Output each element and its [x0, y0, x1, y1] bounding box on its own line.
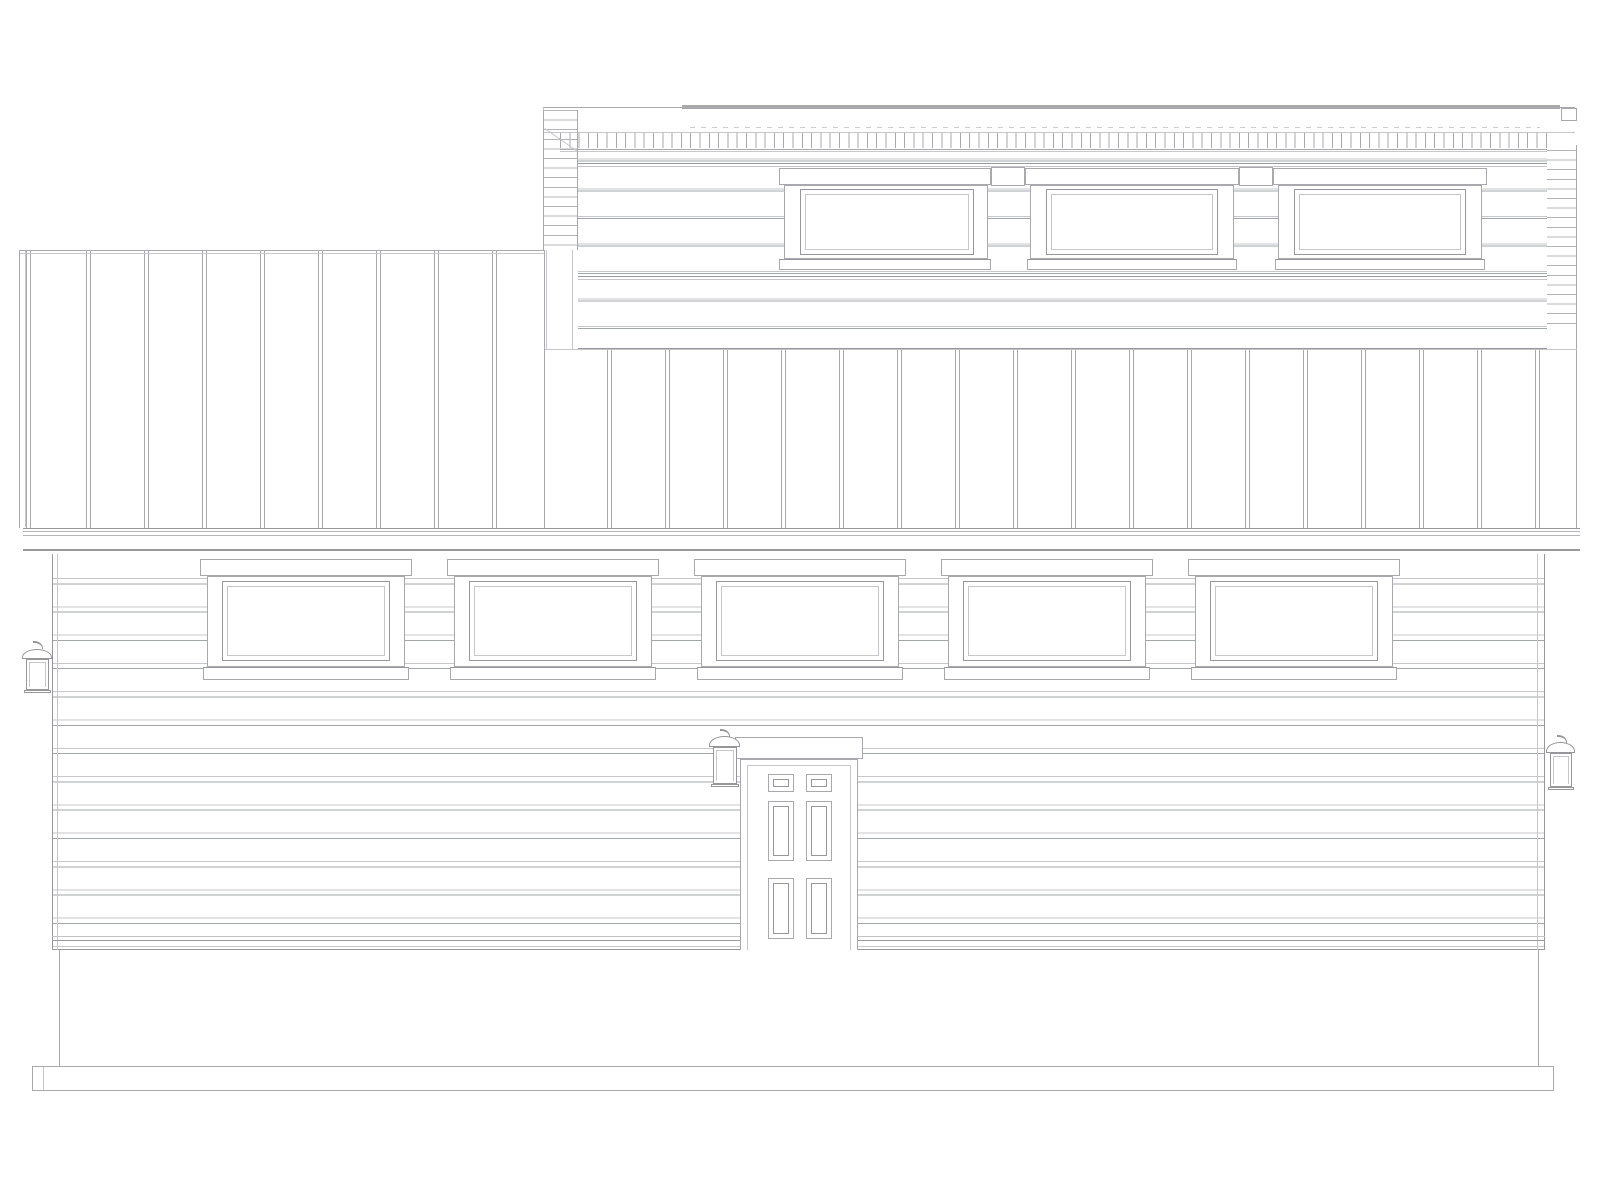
elevation-sheet: [0, 0, 1600, 1200]
main-window-5: [1195, 576, 1393, 667]
entry-door: [740, 759, 858, 958]
sconce-door: [713, 747, 737, 784]
hidden-roof-dashed-line: [690, 127, 1540, 128]
main-window-2-glass: [474, 586, 632, 656]
main-window-4: [948, 576, 1146, 667]
main-window-4-sill: [944, 667, 1150, 680]
upper-window-1-sash: [800, 189, 974, 255]
main-window-4-glass: [968, 586, 1126, 656]
main-window-5-glass: [1215, 586, 1373, 656]
upper-window-3-sill: [1275, 259, 1485, 270]
upper-head-band: [578, 163, 1547, 167]
upper-window-3-head: [1273, 168, 1487, 185]
sconce-left-hook: [33, 641, 43, 649]
upper-window-1-head: [779, 168, 991, 185]
upper-sill-band: [578, 276, 1547, 280]
upper-window-3-glass: [1299, 194, 1461, 250]
door-head-trim: [735, 737, 863, 759]
sconce-left-cap: [22, 649, 52, 659]
door-panel-bottom-left: [768, 878, 794, 939]
upper-window-2-sash: [1046, 189, 1218, 255]
main-window-2-head: [447, 559, 659, 576]
main-window-1-sash: [222, 581, 390, 661]
upper-window-2-glass: [1051, 194, 1213, 250]
main-window-3-sill: [697, 667, 903, 680]
eave-band: [23, 528, 1580, 554]
door-slab: [747, 765, 851, 952]
main-window-3: [701, 576, 899, 667]
upper-window-2-head: [1025, 168, 1239, 185]
upper-window-1: [784, 185, 988, 259]
upper-window-3-sash: [1294, 189, 1466, 255]
main-window-2-sill: [450, 667, 656, 680]
roof-left-panel-inner-left-line: [25, 251, 26, 527]
upper-window-2: [1030, 185, 1234, 259]
upper-window-3: [1278, 185, 1482, 259]
frieze-band: [560, 149, 1547, 152]
foundation-wall: [59, 950, 1539, 1066]
sconce-right-plate: [1548, 787, 1574, 790]
main-window-5-sill: [1191, 667, 1397, 680]
roof-left-panel-block: [19, 250, 545, 528]
main-window-1-head: [200, 559, 412, 576]
rafter-tick-band: [560, 133, 1547, 148]
roof-left-panel-inner-top-line: [20, 253, 544, 254]
upper-head-connector-1: [991, 167, 1025, 186]
door-panel-top-right: [806, 774, 832, 792]
main-window-3-sash: [716, 581, 884, 661]
roof-batten-band: [545, 349, 1577, 528]
main-window-2-sash: [469, 581, 637, 661]
sconce-door-plate: [711, 784, 739, 787]
main-window-1-glass: [227, 586, 385, 656]
main-window-3-head: [694, 559, 906, 576]
main-window-5-head: [1188, 559, 1400, 576]
main-window-2: [454, 576, 652, 667]
footing-strip: [32, 1066, 1554, 1091]
main-wall-left-corner-line: [57, 554, 58, 950]
door-panel-middle-left: [768, 801, 794, 861]
upper-window-1-sill: [779, 259, 991, 270]
sconce-left: [26, 659, 49, 690]
footing-left-joint-line: [43, 1067, 44, 1090]
main-window-5-sash: [1210, 581, 1378, 661]
upper-window-1-glass: [805, 194, 969, 250]
upper-roof-edge-line: [682, 105, 1560, 109]
main-wall-right-corner-line: [1537, 554, 1538, 950]
upper-head-connector-2: [1239, 167, 1273, 186]
main-window-4-head: [941, 559, 1153, 576]
door-panel-bottom-right: [806, 878, 832, 939]
right-return-siding-lines: [1547, 150, 1576, 332]
main-window-3-glass: [721, 586, 879, 656]
sconce-right-cap: [1546, 742, 1575, 753]
sconce-right: [1550, 753, 1572, 787]
sconce-door-cap: [709, 736, 740, 747]
main-window-1: [207, 576, 405, 667]
main-window-1-sill: [203, 667, 409, 680]
upper-window-2-sill: [1027, 259, 1237, 270]
sconce-left-plate: [24, 690, 51, 693]
main-window-4-sash: [963, 581, 1131, 661]
upper-roof-right-step: [1561, 108, 1577, 121]
upper-left-return-lower: [546, 250, 573, 349]
door-panel-middle-right: [806, 801, 832, 861]
door-panel-top-left: [768, 774, 794, 792]
upper-roof-fascia: [543, 107, 1575, 133]
